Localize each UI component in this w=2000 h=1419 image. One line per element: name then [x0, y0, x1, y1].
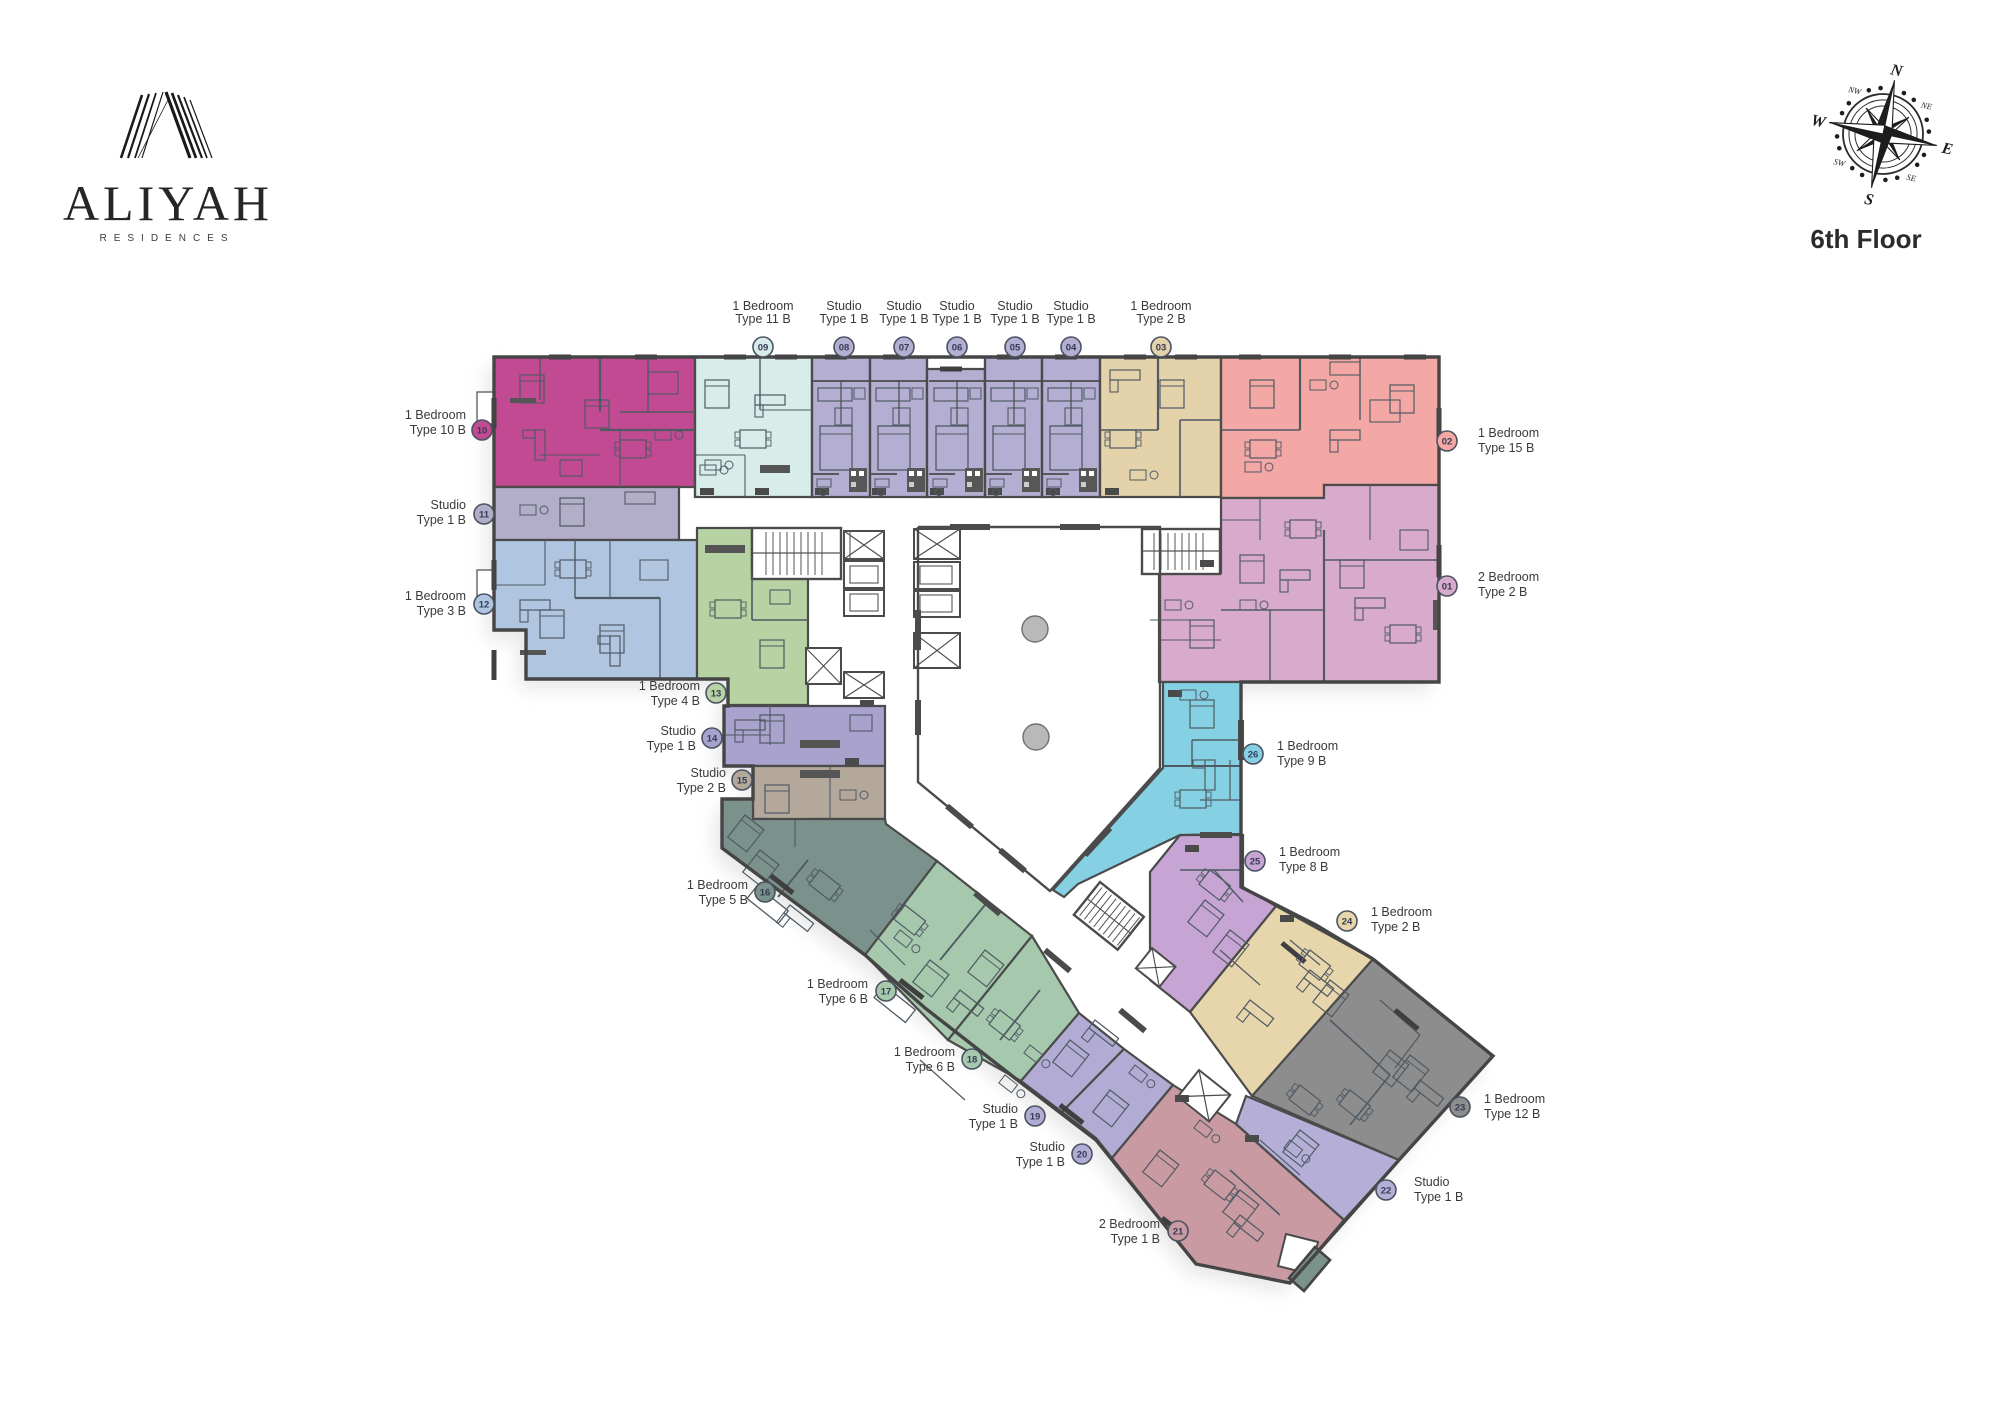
svg-text:15: 15: [737, 776, 748, 787]
svg-text:Type 3 B: Type 3 B: [417, 604, 466, 618]
svg-text:Type 1 B: Type 1 B: [1046, 312, 1095, 326]
svg-text:13: 13: [711, 689, 722, 700]
svg-text:Studio: Studio: [1414, 1175, 1449, 1189]
svg-text:07: 07: [899, 343, 910, 354]
svg-text:Studio: Studio: [939, 299, 974, 313]
svg-text:1 Bedroom: 1 Bedroom: [405, 408, 466, 422]
svg-text:Type 1 B: Type 1 B: [990, 312, 1039, 326]
svg-text:Type 6 B: Type 6 B: [819, 992, 868, 1006]
svg-text:1 Bedroom: 1 Bedroom: [1277, 739, 1338, 753]
svg-text:RESIDENCES: RESIDENCES: [99, 233, 234, 244]
svg-text:11: 11: [479, 510, 490, 521]
svg-text:Type 4 B: Type 4 B: [651, 694, 700, 708]
svg-text:12: 12: [479, 600, 490, 611]
svg-text:Type 11 B: Type 11 B: [735, 312, 790, 326]
svg-text:17: 17: [881, 987, 892, 998]
svg-text:Type 1 B: Type 1 B: [1016, 1155, 1065, 1169]
svg-text:Studio: Studio: [1053, 299, 1088, 313]
svg-text:06: 06: [952, 343, 963, 354]
svg-text:1 Bedroom: 1 Bedroom: [732, 299, 793, 313]
svg-text:14: 14: [707, 734, 718, 745]
svg-text:Type 8 B: Type 8 B: [1279, 860, 1328, 874]
svg-text:04: 04: [1066, 343, 1077, 354]
svg-text:Studio: Studio: [997, 299, 1032, 313]
svg-text:26: 26: [1248, 750, 1259, 761]
svg-text:20: 20: [1077, 1150, 1088, 1161]
svg-text:16: 16: [760, 888, 771, 899]
svg-text:1 Bedroom: 1 Bedroom: [1371, 905, 1432, 919]
svg-text:25: 25: [1250, 857, 1261, 868]
svg-text:Type 1 B: Type 1 B: [1111, 1232, 1160, 1246]
svg-text:Type 15 B: Type 15 B: [1478, 441, 1534, 455]
svg-text:Studio: Studio: [886, 299, 921, 313]
svg-text:Type 6 B: Type 6 B: [906, 1060, 955, 1074]
svg-text:Studio: Studio: [691, 766, 726, 780]
svg-text:18: 18: [967, 1055, 978, 1066]
svg-text:09: 09: [758, 343, 769, 354]
svg-text:1 Bedroom: 1 Bedroom: [687, 878, 748, 892]
svg-text:23: 23: [1455, 1103, 1466, 1114]
svg-text:24: 24: [1342, 917, 1353, 928]
svg-text:6th Floor: 6th Floor: [1810, 224, 1921, 254]
svg-text:Type 1 B: Type 1 B: [819, 312, 868, 326]
svg-text:03: 03: [1156, 343, 1167, 354]
svg-text:Studio: Studio: [431, 498, 466, 512]
svg-text:1 Bedroom: 1 Bedroom: [405, 589, 466, 603]
svg-text:Type 1 B: Type 1 B: [417, 513, 466, 527]
svg-text:Type 2 B: Type 2 B: [1371, 920, 1420, 934]
svg-text:02: 02: [1442, 437, 1453, 448]
svg-text:2 Bedroom: 2 Bedroom: [1478, 570, 1539, 584]
svg-text:Studio: Studio: [983, 1102, 1018, 1116]
svg-text:Studio: Studio: [661, 724, 696, 738]
svg-text:Type 1 B: Type 1 B: [969, 1117, 1018, 1131]
svg-text:Type 10 B: Type 10 B: [410, 423, 466, 437]
svg-text:Studio: Studio: [826, 299, 861, 313]
svg-text:Studio: Studio: [1030, 1140, 1065, 1154]
svg-text:19: 19: [1030, 1112, 1041, 1123]
svg-text:Type 1 B: Type 1 B: [647, 739, 696, 753]
svg-text:Type 1 B: Type 1 B: [932, 312, 981, 326]
svg-text:Type 2 B: Type 2 B: [1136, 312, 1185, 326]
svg-text:2 Bedroom: 2 Bedroom: [1099, 1217, 1160, 1231]
svg-text:1 Bedroom: 1 Bedroom: [807, 977, 868, 991]
svg-text:05: 05: [1010, 343, 1021, 354]
svg-text:1 Bedroom: 1 Bedroom: [1279, 845, 1340, 859]
svg-text:1 Bedroom: 1 Bedroom: [1484, 1092, 1545, 1106]
svg-text:10: 10: [477, 426, 488, 437]
svg-text:08: 08: [839, 343, 850, 354]
svg-text:Type 2 B: Type 2 B: [677, 781, 726, 795]
svg-text:Type 5 B: Type 5 B: [699, 893, 748, 907]
svg-text:21: 21: [1173, 1227, 1184, 1238]
svg-text:1 Bedroom: 1 Bedroom: [894, 1045, 955, 1059]
svg-text:ALIYAH: ALIYAH: [63, 175, 273, 231]
svg-text:Type 2 B: Type 2 B: [1478, 585, 1527, 599]
svg-text:Type 1 B: Type 1 B: [1414, 1190, 1463, 1204]
svg-text:22: 22: [1381, 1186, 1392, 1197]
svg-text:Type 9 B: Type 9 B: [1277, 754, 1326, 768]
svg-text:1 Bedroom: 1 Bedroom: [639, 679, 700, 693]
svg-text:1 Bedroom: 1 Bedroom: [1130, 299, 1191, 313]
svg-text:1 Bedroom: 1 Bedroom: [1478, 426, 1539, 440]
svg-text:Type 1 B: Type 1 B: [879, 312, 928, 326]
svg-text:Type 12 B: Type 12 B: [1484, 1107, 1540, 1121]
svg-text:01: 01: [1442, 582, 1453, 593]
